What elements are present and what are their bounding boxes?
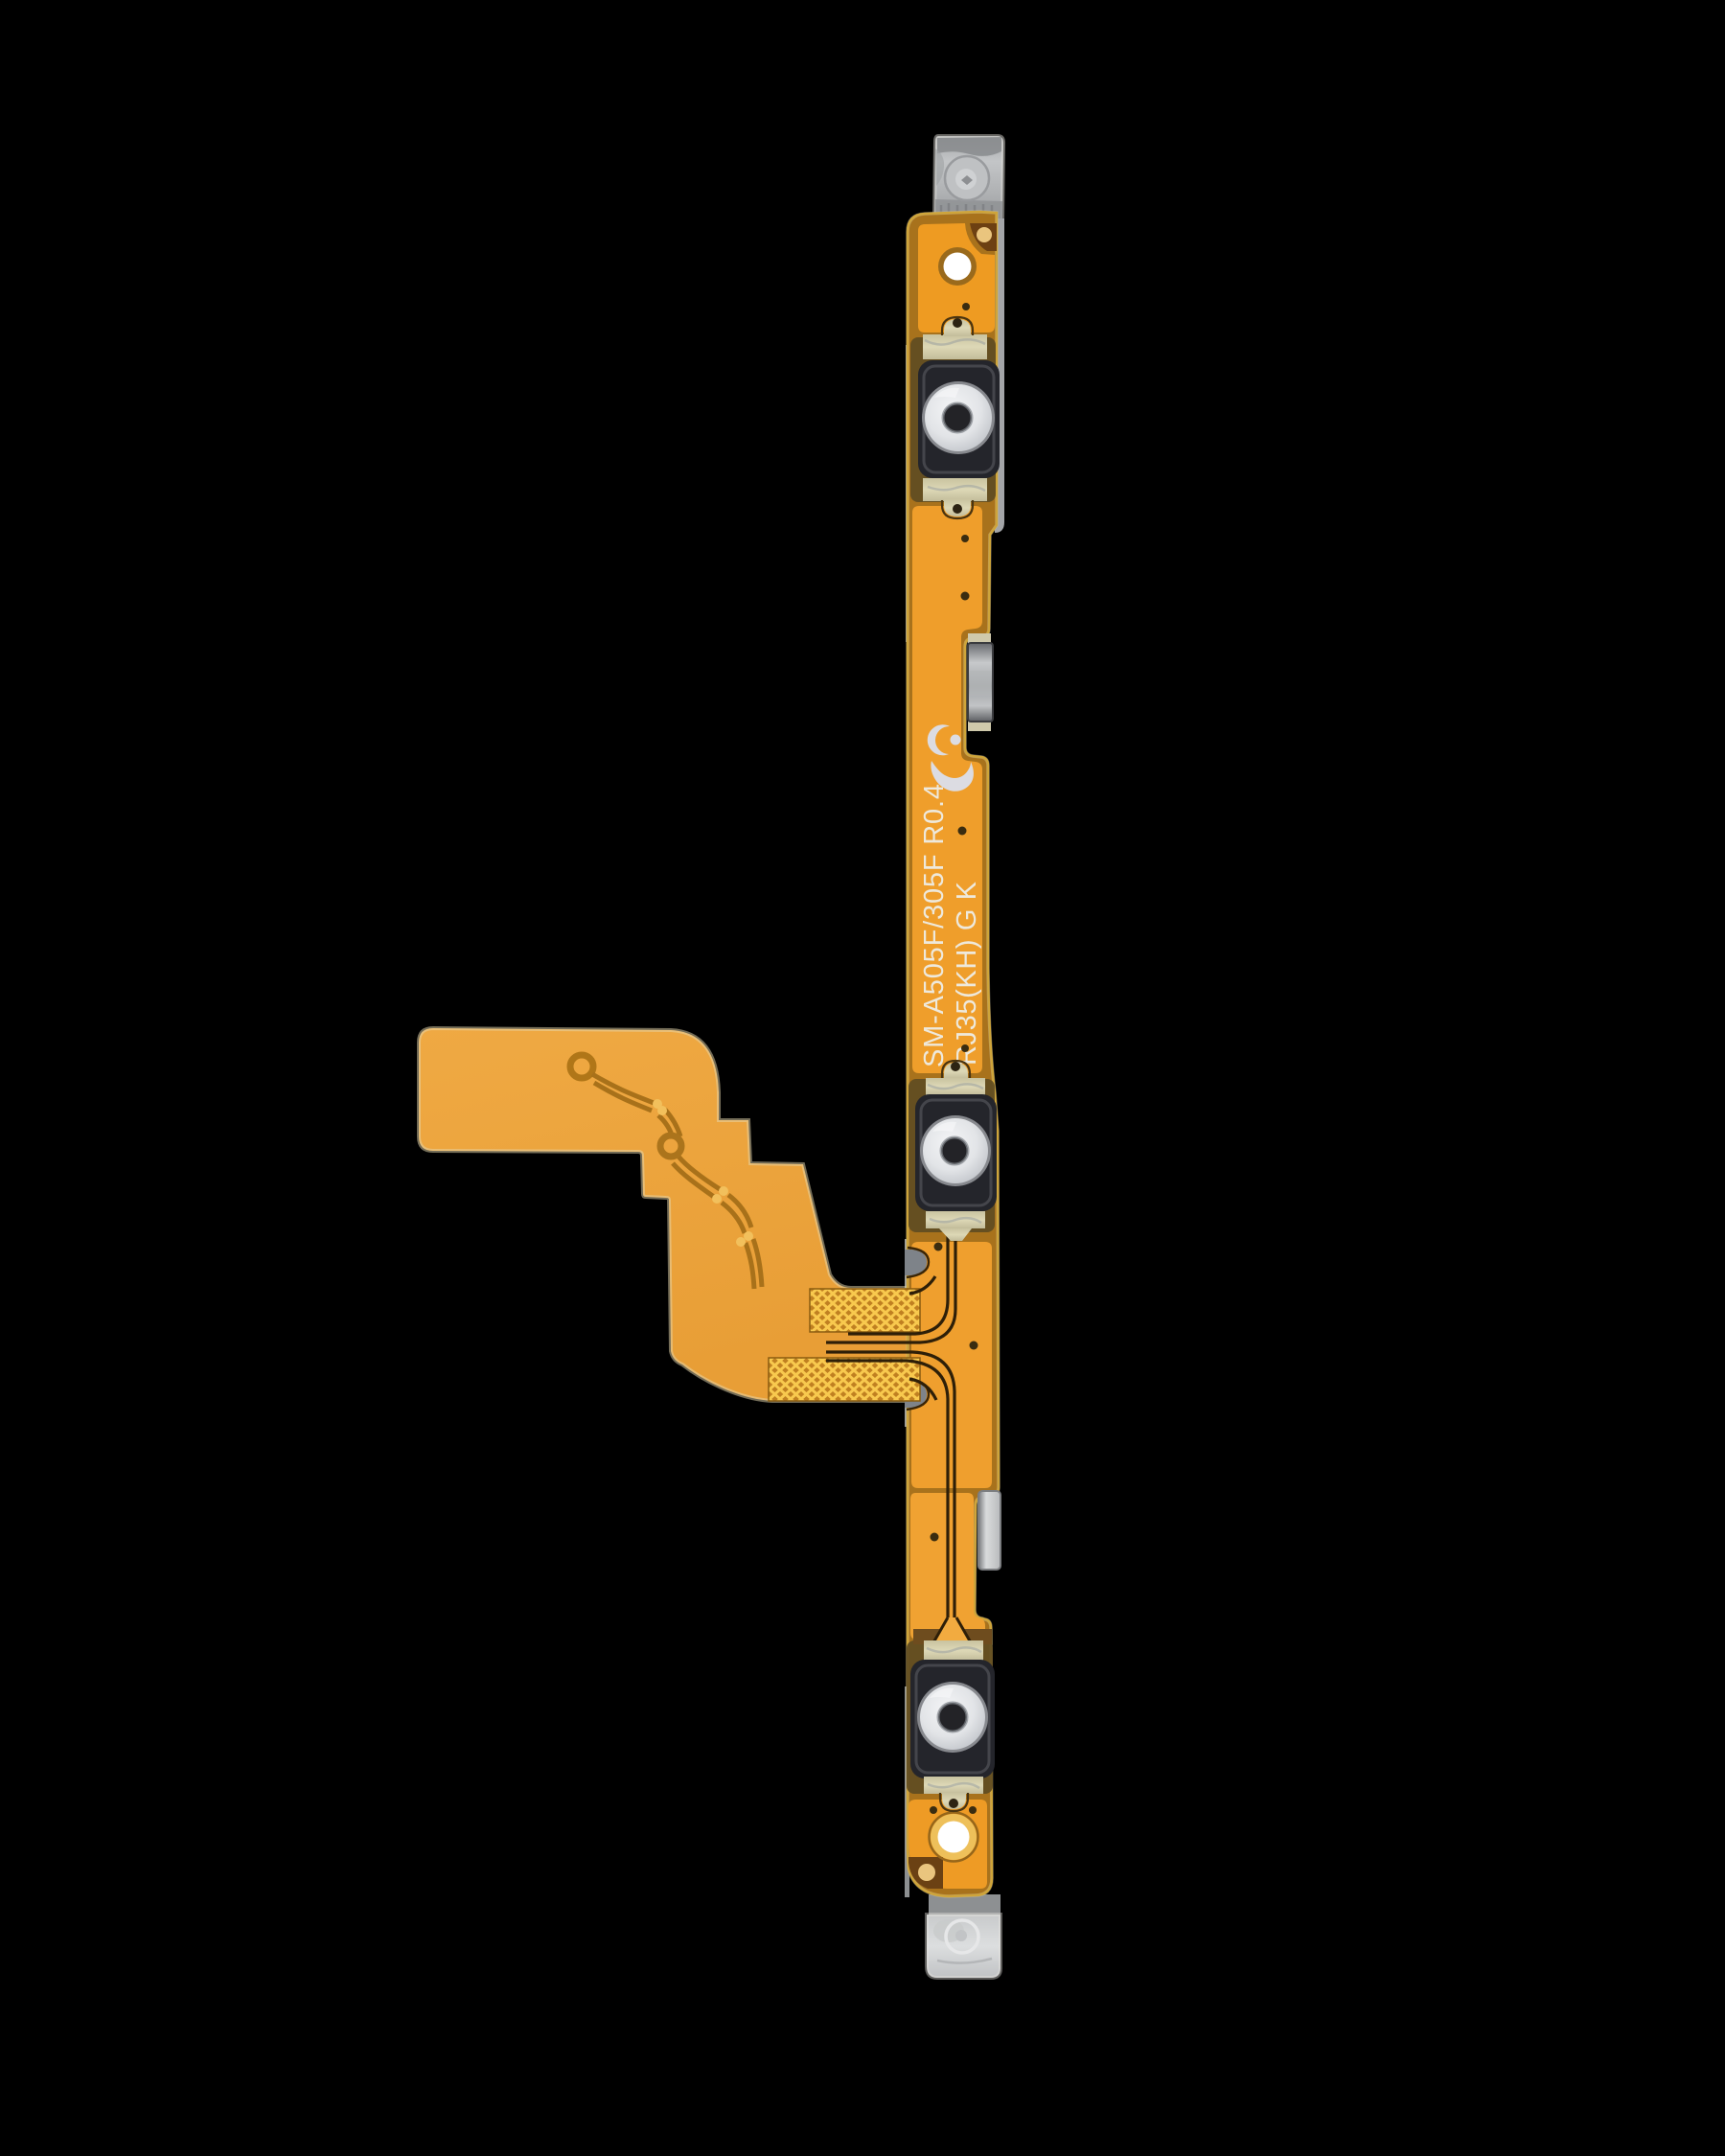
svg-text:RJ35(KH) G K: RJ35(KH) G K xyxy=(952,881,982,1066)
svg-text:SM-A505F/305F R0.4: SM-A505F/305F R0.4 xyxy=(919,784,950,1067)
